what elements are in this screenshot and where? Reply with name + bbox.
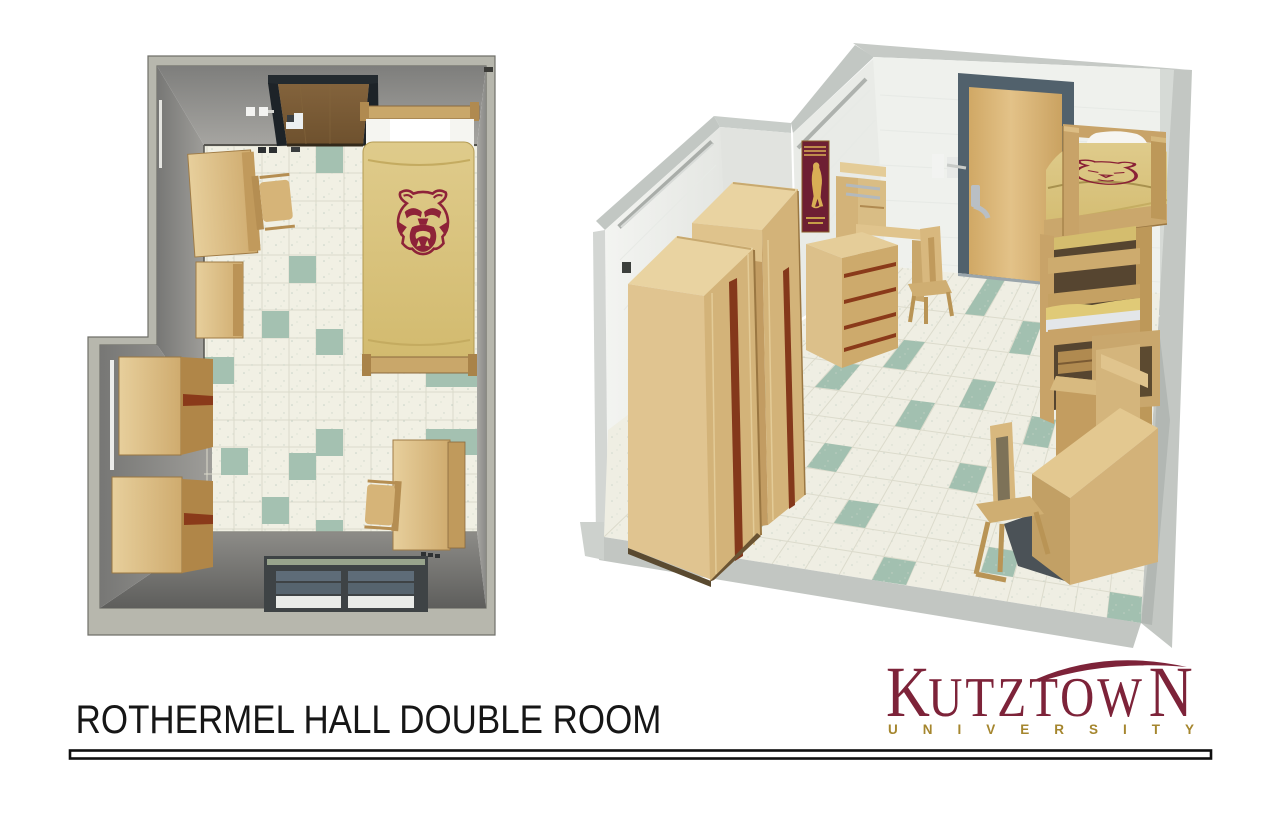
svg-text:ROTHERMEL HALL DOUBLE ROOM: ROTHERMEL HALL DOUBLE ROOM [76, 697, 662, 741]
svg-text:UNIVERSITY: UNIVERSITY [888, 722, 1219, 737]
svg-text:UTZTOW: UTZTOW [928, 667, 1145, 729]
svg-text:K: K [886, 653, 930, 732]
